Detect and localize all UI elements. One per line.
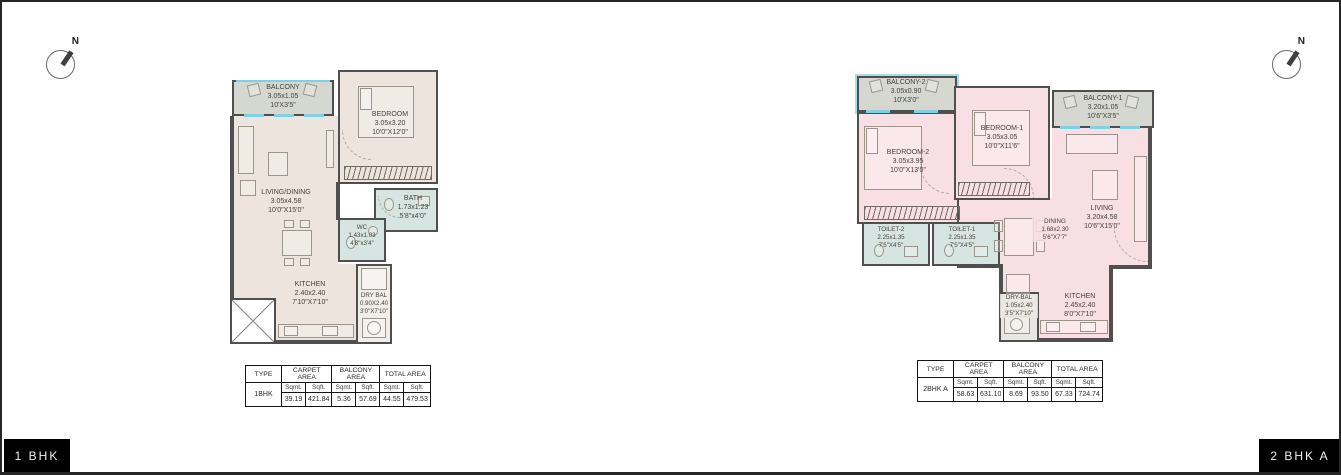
room-label-bedroom-1: BEDROOM-1 3.05x3.05 10'0"X11'6" <box>960 124 1044 151</box>
room-label-dining: DINING 1.68x2.30 5'6"X7'7" <box>1032 218 1078 242</box>
washing-machine-drum <box>1010 318 1023 331</box>
plan-tag-2bhk-a: 2 BHK A <box>1259 439 1341 472</box>
room-label-balcony-1: BALCONY-1 3.20x1.05 10'6"X3'5" <box>1054 94 1152 121</box>
unit-label: Sqmt. <box>380 383 404 393</box>
table-header-type: TYPE <box>246 366 282 383</box>
north-label: N <box>72 36 79 47</box>
coffee-table <box>268 152 288 176</box>
chair <box>994 220 1003 232</box>
total-sqmt-value: 67.33 <box>1052 388 1076 402</box>
hob <box>1080 322 1096 332</box>
wardrobe <box>864 206 960 220</box>
unit-label: Sqft. <box>356 383 380 393</box>
north-label: N <box>1298 36 1305 47</box>
balcony-sqft-value: 57.69 <box>356 393 380 407</box>
area-table-1bhk: TYPE CARPET AREA BALCONY AREA TOTAL AREA… <box>245 365 431 407</box>
window <box>1090 126 1110 129</box>
room-label-living: LIVING 3.20x4.58 10'6"X15'0" <box>1070 204 1134 231</box>
area-table-2bhk-a: TYPE CARPET AREA BALCONY AREA TOTAL AREA… <box>917 360 1103 402</box>
carpet-sqmt-value: 58.63 <box>954 388 978 402</box>
shelving-unit <box>1134 156 1147 242</box>
carpet-sqft-value: 631.10 <box>978 388 1004 402</box>
fridge <box>1006 274 1030 294</box>
sofa <box>238 126 254 174</box>
chair <box>300 258 310 266</box>
plan-tag-1bhk: 1 BHK <box>4 439 70 472</box>
total-sqft-value: 724.74 <box>1076 388 1102 402</box>
unit-label: Sqft. <box>404 383 430 393</box>
brochure-page: N N <box>0 0 1341 475</box>
table-header-carpet: CARPET AREA <box>954 361 1004 378</box>
chair <box>300 220 310 228</box>
room-label-bedroom-2: BEDROOM-2 3.05x3.95 10'0"X13'0" <box>864 148 952 175</box>
unit-label: Sqmt. <box>1052 378 1076 388</box>
room-label-dry-balcony: DRY-BAL 1.05x2.40 3'5"X7'10" <box>1000 294 1038 318</box>
floor-plan-1bhk: BALCONY 3.05x1.05 10'X3'5" BEDROOM 3.05x… <box>230 68 442 354</box>
chair <box>284 258 294 266</box>
unit-label: Sqmt. <box>1004 378 1028 388</box>
window <box>274 114 294 117</box>
floor-plan-2bhk-a: BALCONY-2 3.05x0.90 10'X3'0" BEDROOM-2 3… <box>854 68 1164 354</box>
window <box>866 110 890 113</box>
window <box>236 80 330 82</box>
chair <box>284 220 294 228</box>
total-sqmt-value: 44.55 <box>380 393 404 407</box>
table-header-carpet: CARPET AREA <box>282 366 332 383</box>
plan-tag-label: 1 BHK <box>15 449 60 463</box>
unit-label: Sqft. <box>978 378 1004 388</box>
table-header-total: TOTAL AREA <box>380 366 430 383</box>
unit-label: Sqmt. <box>954 378 978 388</box>
balcony-sqmt-value: 8.69 <box>1004 388 1028 402</box>
room-label-dry-balcony: DRY BAL 0.90X2.40 3'0"X7'10" <box>354 292 394 316</box>
kitchen-sink <box>1046 322 1060 332</box>
unit-label: Sqmt. <box>282 383 306 393</box>
plan-tag-label: 2 BHK A <box>1270 449 1329 463</box>
room-label-bath: BATH 1.73x1.23 5'8"x4'0" <box>390 194 436 221</box>
washing-machine-drum <box>367 321 381 335</box>
room-label-toilet-2: TOILET-2 2.25x1.35 7'5"X4'5" <box>865 226 917 250</box>
room-label-kitchen: KITCHEN 2.45x2.40 8'0"X7'10" <box>1044 292 1116 319</box>
table-header-total: TOTAL AREA <box>1052 361 1102 378</box>
wardrobe <box>958 182 1030 196</box>
wall-segment <box>336 182 340 220</box>
window <box>1060 126 1080 129</box>
hob <box>284 326 298 336</box>
utility-sink <box>361 268 387 290</box>
room-label-living: LIVING/DINING 3.05x4.58 10'0"X15'0" <box>240 188 332 215</box>
total-sqft-value: 479.53 <box>404 393 430 407</box>
dining-table <box>282 230 312 256</box>
kitchen-sink <box>322 326 338 336</box>
room-label-wc: WC 1.43x1.03 4'8"x3'4" <box>340 224 384 248</box>
coffee-table <box>1092 170 1118 200</box>
window <box>1120 126 1140 129</box>
window <box>914 110 938 113</box>
unit-label: Sqft. <box>1076 378 1102 388</box>
dining-table <box>1004 218 1034 256</box>
wall-segment <box>1109 265 1152 269</box>
room-label-kitchen: KITCHEN 2.40x2.40 7'10"X7'10" <box>266 280 354 307</box>
unit-label: Sqft. <box>1028 378 1052 388</box>
chair <box>994 240 1003 252</box>
room-label-balcony: BALCONY 3.05x1.05 10'X3'5" <box>234 83 332 110</box>
balcony-sqmt-value: 5.36 <box>332 393 356 407</box>
table-type-value: 1BHK <box>246 383 282 407</box>
unit-label: Sqmt. <box>332 383 356 393</box>
room-label-bedroom: BEDROOM 3.05x3.20 10'0"X12'0" <box>348 110 432 137</box>
wall-segment <box>1148 126 1152 269</box>
window <box>304 114 324 117</box>
table-header-type: TYPE <box>918 361 954 378</box>
room-label-toilet-1: TOILET-1 2.25x1.35 7'5"X4'5" <box>936 226 988 250</box>
tv-unit <box>326 130 334 168</box>
compass-left: N <box>40 36 82 82</box>
carpet-sqmt-value: 39.19 <box>282 393 306 407</box>
pillow <box>360 88 372 110</box>
wardrobe <box>344 166 432 180</box>
unit-label: Sqft. <box>306 383 332 393</box>
sofa <box>1066 134 1118 154</box>
table-header-balcony: BALCONY AREA <box>1004 361 1052 378</box>
compass-right: N <box>1266 36 1308 82</box>
wall-segment <box>230 116 234 300</box>
wall-segment <box>274 340 358 344</box>
room-label-balcony-2: BALCONY-2 3.05x0.90 10'X3'0" <box>858 78 954 105</box>
balcony-sqft-value: 93.50 <box>1028 388 1052 402</box>
window <box>244 114 264 117</box>
table-header-balcony: BALCONY AREA <box>332 366 380 383</box>
table-type-value: 2BHK A <box>918 378 954 402</box>
carpet-sqft-value: 421.84 <box>306 393 332 407</box>
